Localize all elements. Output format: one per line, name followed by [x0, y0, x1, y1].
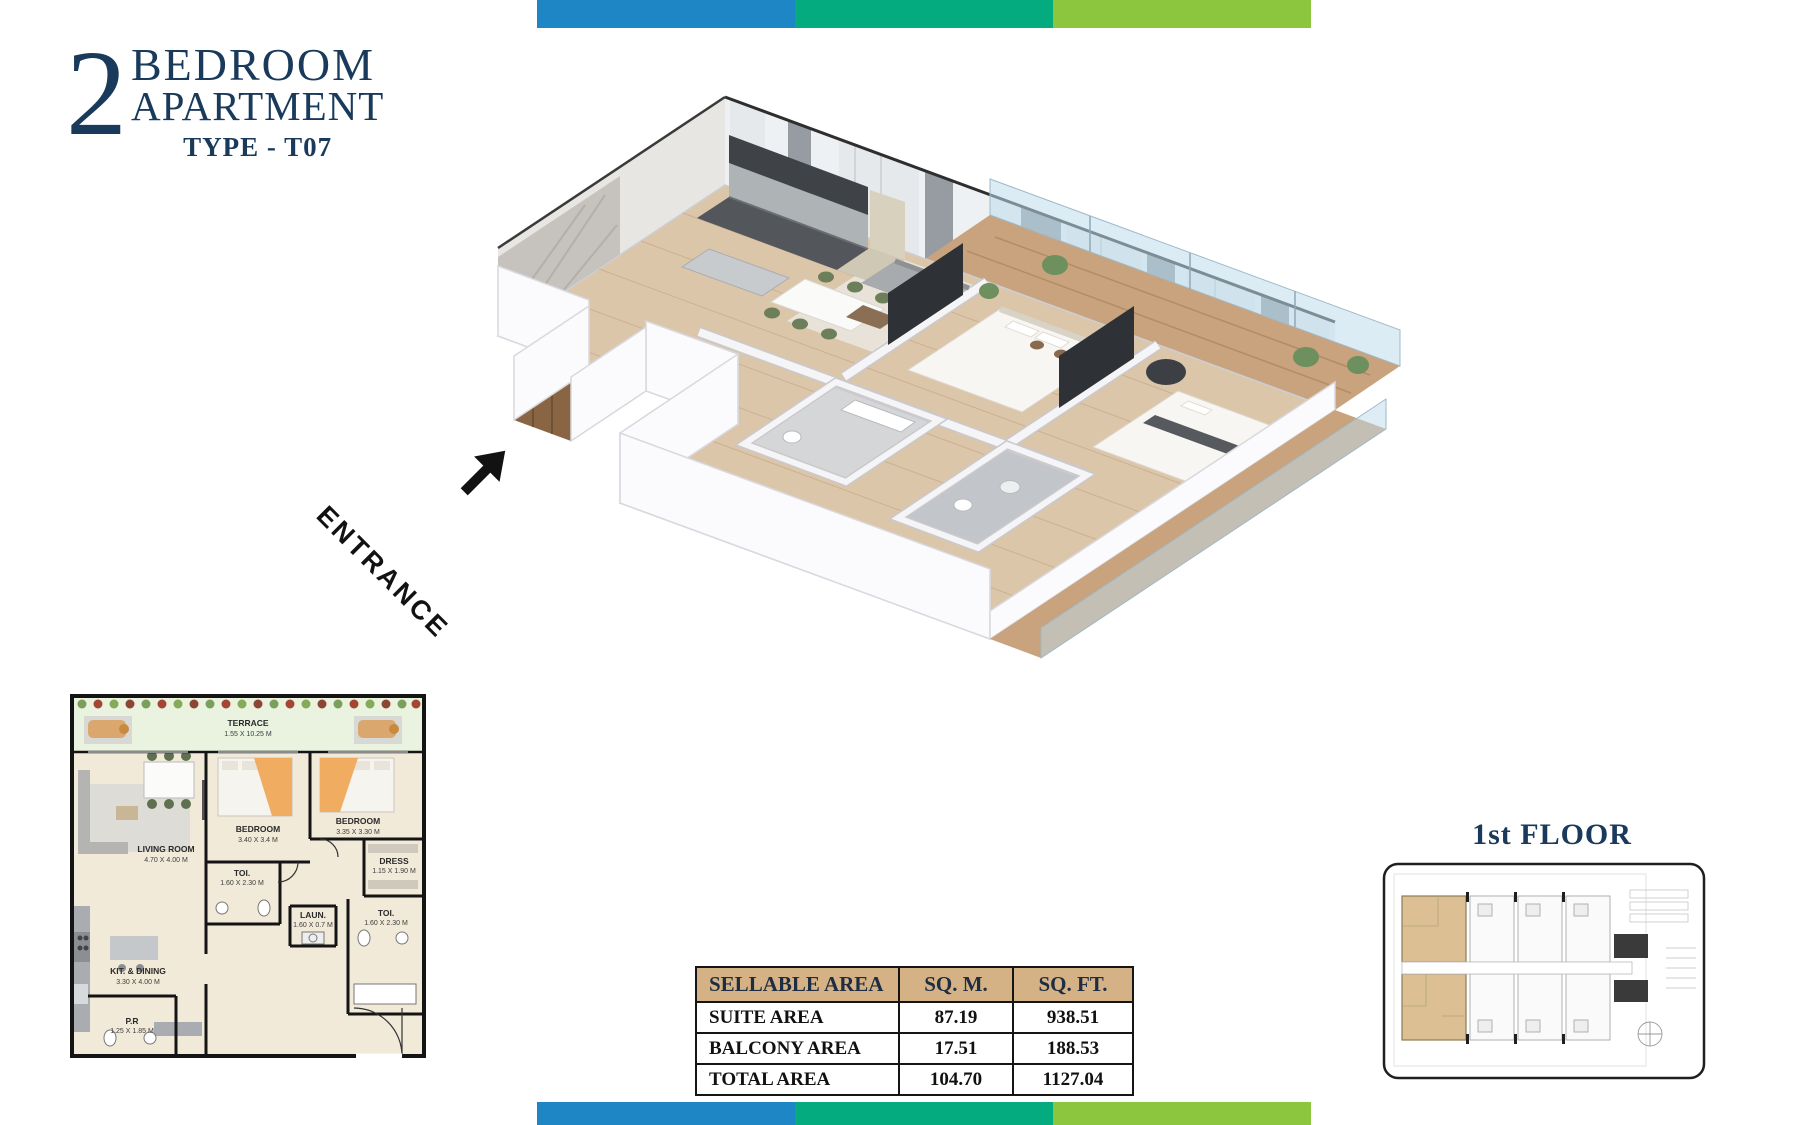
row-sqm: 104.70 — [899, 1064, 1013, 1095]
key-plan — [1378, 856, 1722, 1088]
table-row: BALCONY AREA 17.51 188.53 — [696, 1033, 1133, 1064]
row-sqft: 188.53 — [1013, 1033, 1133, 1064]
room-dims-bedroom1: 3.40 X 3.4 M — [238, 837, 278, 844]
room-label-pr: P.R — [125, 1016, 138, 1026]
row-label: BALCONY AREA — [696, 1033, 899, 1064]
corridor — [1402, 962, 1632, 974]
room-dims-toi2: 1.60 X 2.30 M — [364, 920, 408, 927]
accent-segment-teal — [795, 1102, 1053, 1125]
floorplan-2d: TERRACE 1.55 X 10.25 M LIVING ROOM 4.70 … — [58, 684, 450, 1076]
table-row: TOTAL AREA 104.70 1127.04 — [696, 1064, 1133, 1095]
room-label-toi2: TOI. — [378, 908, 394, 918]
col-header-sqm: SQ. M. — [899, 967, 1013, 1002]
row-label: SUITE AREA — [696, 1002, 899, 1033]
room-label-living: LIVING ROOM — [137, 844, 194, 854]
row-sqm: 17.51 — [899, 1033, 1013, 1064]
row-label: TOTAL AREA — [696, 1064, 899, 1095]
accent-segment-teal — [795, 0, 1053, 28]
title-number: 2 — [66, 44, 127, 144]
room-label-terrace: TERRACE — [227, 718, 268, 728]
armchair — [1146, 359, 1186, 385]
room-label-laun: LAUN. — [300, 910, 326, 920]
room-dims-bedroom2: 3.35 X 3.30 M — [336, 829, 380, 836]
elevator-core — [1614, 980, 1648, 1002]
room-label-bedroom2: BEDROOM — [336, 816, 380, 826]
col-header-sellable: SELLABLE AREA — [696, 967, 899, 1002]
room-dims-kitchen: 3.30 X 4.00 M — [116, 979, 160, 986]
accent-segment-blue — [537, 0, 795, 28]
row-sqft: 1127.04 — [1013, 1064, 1133, 1095]
highlighted-unit-top — [1402, 896, 1466, 962]
highlighted-unit-bottom — [1402, 974, 1466, 1040]
room-dims-pr: 1.25 X 1.85 M — [110, 1028, 154, 1035]
accent-segment-blue — [537, 1102, 795, 1125]
plant-icon — [979, 283, 999, 299]
room-dims-living: 4.70 X 4.00 M — [144, 857, 188, 864]
row-sqm: 87.19 — [899, 1002, 1013, 1033]
entrance-arrow-icon — [452, 440, 516, 504]
room-label-kitchen: KIT. & DINING — [110, 966, 166, 976]
room-dims-laun: 1.60 X 0.7 M — [293, 922, 333, 929]
fridge-cabinet — [870, 190, 905, 260]
brochure-page: { "header": { "number": "2", "line1": "B… — [0, 0, 1800, 1125]
floorplan-3d — [295, 85, 1430, 677]
elevator-core — [1614, 934, 1648, 958]
room-label-dress: DRESS — [379, 856, 409, 866]
plant-icon — [1042, 255, 1068, 275]
accent-segment-green — [1053, 1102, 1311, 1125]
table-header-row: SELLABLE AREA SQ. M. SQ. FT. — [696, 967, 1133, 1002]
top-accent-bar — [537, 0, 1311, 28]
plant-icon — [1347, 356, 1369, 374]
room-dims-dress: 1.15 X 1.90 M — [372, 868, 416, 875]
room-dims-toi1: 1.60 X 2.30 M — [220, 880, 264, 887]
table-row: SUITE AREA 87.19 938.51 — [696, 1002, 1133, 1033]
room-dims-terrace: 1.55 X 10.25 M — [224, 731, 272, 738]
room-label-toi1: TOI. — [234, 868, 250, 878]
plant-icon — [1293, 347, 1319, 367]
room-label-bedroom1: BEDROOM — [236, 824, 280, 834]
keyplan-title: 1st FLOOR — [1380, 818, 1724, 852]
row-sqft: 938.51 — [1013, 1002, 1133, 1033]
bottom-accent-bar — [537, 1102, 1311, 1125]
accent-segment-green — [1053, 0, 1311, 28]
area-table: SELLABLE AREA SQ. M. SQ. FT. SUITE AREA … — [695, 966, 1134, 1096]
col-header-sqft: SQ. FT. — [1013, 967, 1133, 1002]
title-line1: BEDROOM — [131, 44, 384, 86]
